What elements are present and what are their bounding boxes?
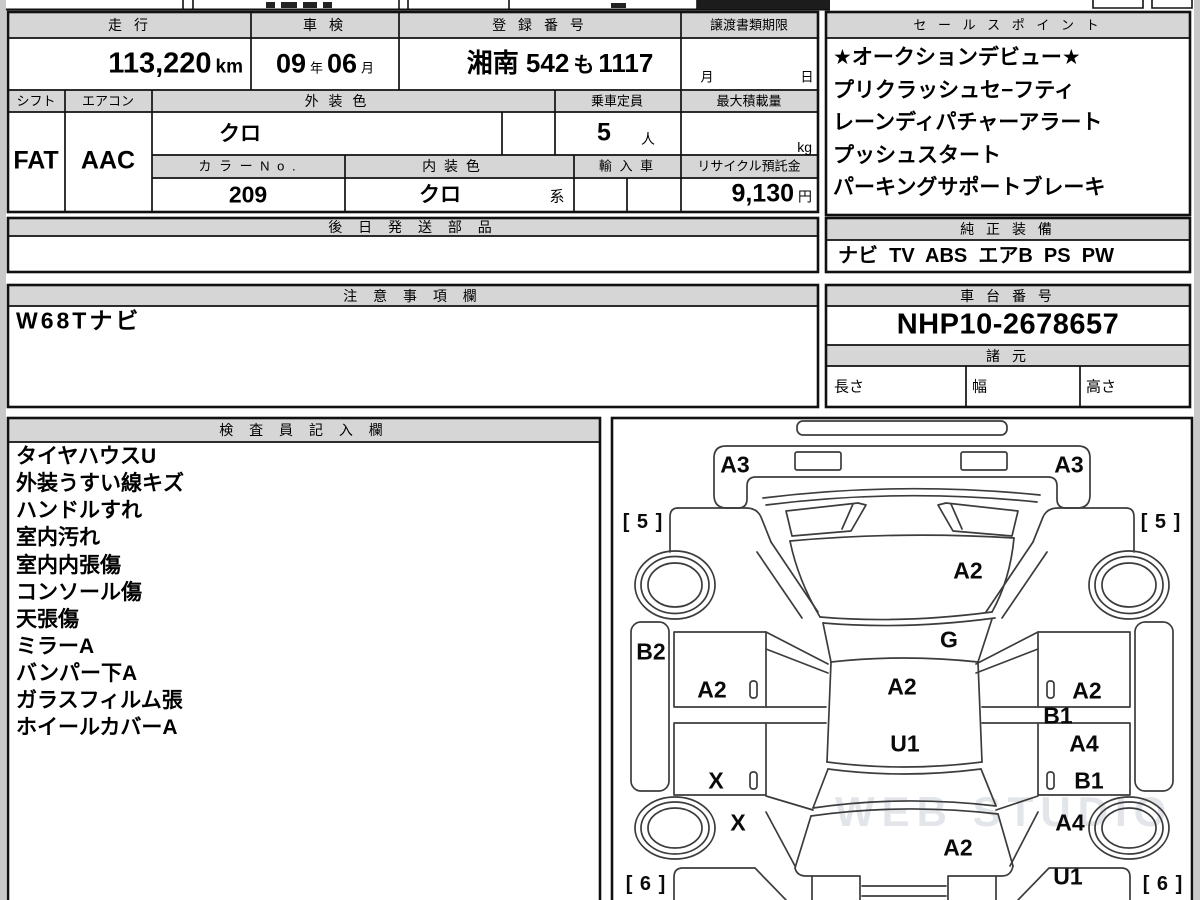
- registration-header: 登 録 番 号: [492, 18, 588, 32]
- right-scan-edge: [1194, 0, 1200, 900]
- mileage-unit: km: [216, 58, 243, 77]
- inspection-month: 06: [327, 51, 357, 78]
- inspection-year: 09: [276, 51, 306, 78]
- tire-size-label: [ 5 ]: [623, 512, 664, 532]
- left-scan-edge: [0, 0, 6, 900]
- interior-color-suffix: 系: [549, 190, 564, 205]
- inspector-notes-header: 検 査 員 記 入 欄: [219, 423, 388, 437]
- sales-point-item: パーキングサポートブレーキ: [833, 172, 1105, 205]
- inspector-note-item: ホイールカバーA: [16, 714, 184, 741]
- interior-color-header: 内 装 色: [422, 159, 482, 173]
- damage-code-label: A4: [1069, 733, 1098, 756]
- damage-code-label: X: [730, 812, 745, 835]
- inspection-year-unit: 年: [310, 62, 323, 75]
- exterior-color-value: クロ: [219, 124, 261, 145]
- chassis-number-header: 車 台 番 号: [960, 289, 1056, 303]
- damage-code-label: A2: [953, 560, 982, 583]
- damage-code-label: X: [708, 770, 723, 793]
- interior-color-value: クロ: [419, 185, 461, 206]
- chassis-number-value: NHP10-2678657: [897, 311, 1120, 340]
- damage-code-label: G: [940, 629, 958, 652]
- later-parts-header: 後 日 発 送 部 品: [328, 220, 497, 234]
- import-header: 輸 入 車: [599, 160, 655, 173]
- capacity-unit: 人: [641, 132, 655, 146]
- transfer-docs-header: 譲渡書類期限: [710, 19, 788, 32]
- color-no-header: カ ラ ー N o .: [198, 160, 297, 173]
- vehicle-auction-sheet: { "page": { "watermark": "WEB STUDIO R10…: [0, 0, 1200, 900]
- damage-code-label: U1: [890, 733, 919, 756]
- registration-area: 湘南 542: [467, 50, 570, 76]
- aircon-header: エアコン: [82, 95, 134, 108]
- damage-code-label: B1: [1043, 705, 1072, 728]
- registration-number: 1117: [598, 50, 653, 76]
- transfer-month-unit: 月: [700, 71, 713, 84]
- aircon-value: AAC: [81, 149, 135, 174]
- sales-point-item: レーンディパチャーアラート: [833, 107, 1105, 140]
- damage-code-label: B2: [636, 641, 665, 664]
- inspector-note-item: 外装うすい線キズ: [16, 470, 184, 497]
- inspection-month-unit: 月: [361, 62, 374, 75]
- mileage-number: 113,220: [108, 50, 211, 79]
- max-load-unit: kg: [797, 140, 812, 154]
- inspector-note-item: ミラーA: [16, 633, 184, 660]
- inspector-note-item: 室内汚れ: [16, 524, 184, 551]
- damage-code-label: A2: [1072, 680, 1101, 703]
- damage-code-label: A2: [943, 837, 972, 860]
- spec-height-label: 高さ: [1086, 380, 1116, 395]
- spec-length-label: 長さ: [834, 380, 864, 395]
- sales-point-item: ★オークションデビュー★: [833, 42, 1105, 75]
- transfer-day-unit: 日: [800, 71, 813, 84]
- inspector-note-item: 天張傷: [16, 606, 184, 633]
- equipment-header: 純 正 装 備: [960, 222, 1056, 236]
- notes-header: 注 意 事 項 欄: [343, 289, 483, 303]
- specs-header: 諸 元: [986, 349, 1030, 363]
- inspection-header: 車 検: [303, 18, 347, 32]
- damage-code-label: U1: [1053, 866, 1082, 889]
- exterior-color-header: 外 装 色: [305, 94, 370, 108]
- notes-value: W68Tナビ: [16, 310, 141, 333]
- damage-code-label: A3: [1054, 454, 1083, 477]
- shift-header: シフト: [16, 95, 55, 108]
- shift-value: FAT: [13, 149, 58, 174]
- equipment-value: ナビ TV ABS エアB PS PW: [838, 246, 1114, 266]
- recycle-fee-number: 9,130: [731, 182, 794, 207]
- watermark: WEB STUDIO R10: [835, 788, 1200, 836]
- inspector-note-item: バンパー下A: [16, 660, 184, 687]
- capacity-value: 5: [597, 121, 611, 146]
- recycle-fee-header: リサイクル預託金: [697, 160, 800, 173]
- inspector-notes-list: タイヤハウスU外装うすい線キズハンドルすれ室内汚れ室内内張傷コンソール傷天張傷ミ…: [16, 443, 184, 742]
- inspector-note-item: ハンドルすれ: [16, 497, 184, 524]
- damage-code-label: A2: [887, 676, 916, 699]
- damage-code-label: A4: [1055, 812, 1084, 835]
- damage-code-label: A2: [697, 679, 726, 702]
- inspector-note-item: 室内内張傷: [16, 552, 184, 579]
- sales-point-item: プリクラッシュセ−フティ: [833, 75, 1105, 108]
- max-load-header: 最大積載量: [716, 95, 781, 108]
- inspector-note-item: ガラスフィルム張: [16, 687, 184, 714]
- mileage-header: 走 行: [108, 18, 152, 32]
- sales-points-list: ★オークションデビュー★プリクラッシュセ−フティレーンディパチャーアラートプッシ…: [833, 42, 1105, 205]
- tire-size-label: [ 6 ]: [626, 874, 667, 894]
- recycle-fee-value: 9,130 円: [731, 182, 812, 207]
- tire-size-label: [ 5 ]: [1141, 512, 1182, 532]
- inspector-note-item: コンソール傷: [16, 579, 184, 606]
- color-no-value: 209: [229, 184, 267, 207]
- damage-code-label: B1: [1074, 770, 1103, 793]
- sales-point-item: プッシュスタート: [833, 140, 1105, 173]
- tire-size-label: [ 6 ]: [1143, 874, 1184, 894]
- registration-value: 湘南 542 も 1117: [467, 50, 654, 76]
- mileage-value: 113,220 km: [108, 50, 243, 79]
- inspection-value: 09 年 06 月: [276, 51, 374, 78]
- capacity-header: 乗車定員: [591, 95, 643, 108]
- spec-width-label: 幅: [972, 380, 987, 395]
- damage-code-label: A3: [720, 454, 749, 477]
- sales-points-header: セ ー ル ス ポ イ ン ト: [913, 19, 1102, 32]
- registration-kana: も: [573, 55, 594, 76]
- recycle-fee-unit: 円: [798, 190, 812, 204]
- inspector-note-item: タイヤハウスU: [16, 443, 184, 470]
